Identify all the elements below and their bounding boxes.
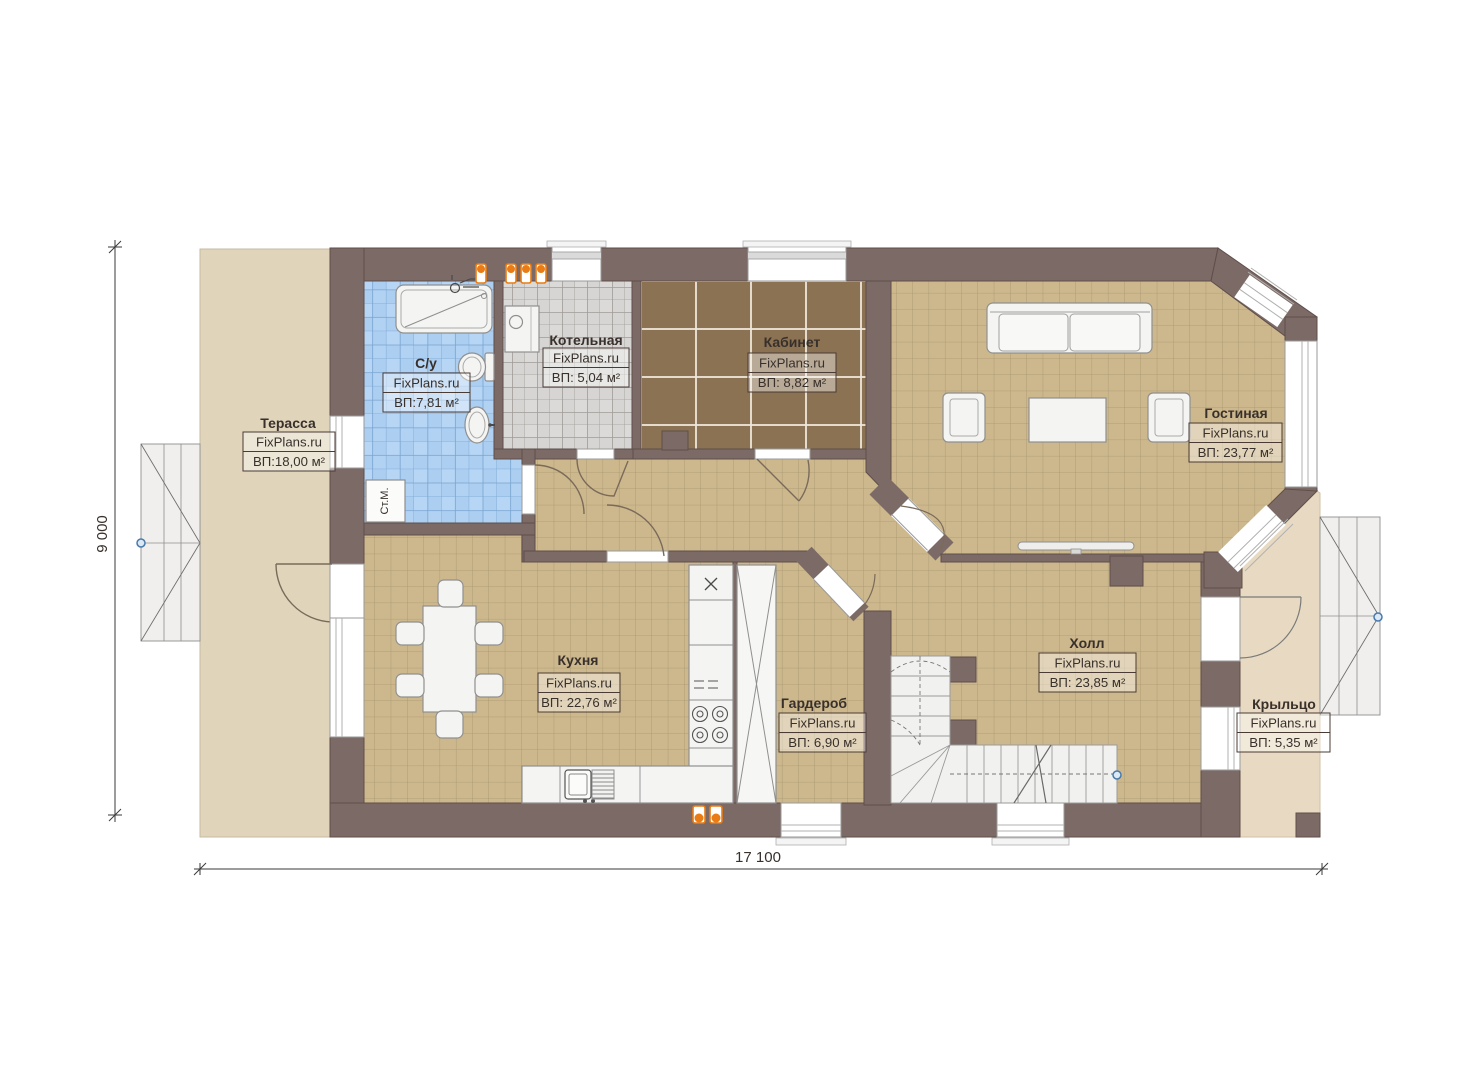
svg-text:Ст.М.: Ст.М.: [379, 487, 391, 514]
svg-text:Котельная: Котельная: [549, 332, 622, 348]
svg-text:ВП: 6,90 м²: ВП: 6,90 м²: [788, 735, 857, 750]
svg-text:FixPlans.ru: FixPlans.ru: [1251, 716, 1317, 731]
svg-text:ВП: 23,85 м²: ВП: 23,85 м²: [1050, 675, 1126, 690]
svg-text:С/у: С/у: [415, 355, 437, 371]
svg-text:FixPlans.ru: FixPlans.ru: [790, 716, 856, 731]
svg-text:FixPlans.ru: FixPlans.ru: [394, 376, 460, 391]
svg-text:FixPlans.ru: FixPlans.ru: [1055, 656, 1121, 671]
svg-text:Холл: Холл: [1069, 635, 1104, 651]
svg-text:Гостиная: Гостиная: [1204, 405, 1267, 421]
svg-text:17 100: 17 100: [735, 849, 781, 866]
svg-text:Крыльцо: Крыльцо: [1252, 696, 1316, 712]
svg-text:9 000: 9 000: [94, 515, 111, 553]
svg-text:Терасса: Терасса: [260, 415, 316, 431]
svg-text:FixPlans.ru: FixPlans.ru: [1203, 426, 1269, 441]
svg-text:ВП: 5,04 м²: ВП: 5,04 м²: [552, 370, 621, 385]
svg-text:ВП: 8,82 м²: ВП: 8,82 м²: [758, 375, 827, 390]
svg-text:FixPlans.ru: FixPlans.ru: [256, 435, 322, 450]
svg-text:ВП:7,81 м²: ВП:7,81 м²: [394, 395, 459, 410]
svg-text:Кабинет: Кабинет: [764, 334, 821, 350]
svg-text:FixPlans.ru: FixPlans.ru: [759, 356, 825, 371]
svg-text:ВП: 23,77 м²: ВП: 23,77 м²: [1198, 445, 1274, 460]
svg-text:Кухня: Кухня: [558, 652, 599, 668]
svg-text:FixPlans.ru: FixPlans.ru: [553, 351, 619, 366]
svg-text:ВП: 5,35 м²: ВП: 5,35 м²: [1249, 735, 1318, 750]
svg-text:ВП: 22,76 м²: ВП: 22,76 м²: [541, 695, 617, 710]
svg-text:ВП:18,00 м²: ВП:18,00 м²: [253, 454, 326, 469]
svg-text:Гардероб: Гардероб: [781, 695, 848, 711]
svg-text:FixPlans.ru: FixPlans.ru: [546, 676, 612, 691]
